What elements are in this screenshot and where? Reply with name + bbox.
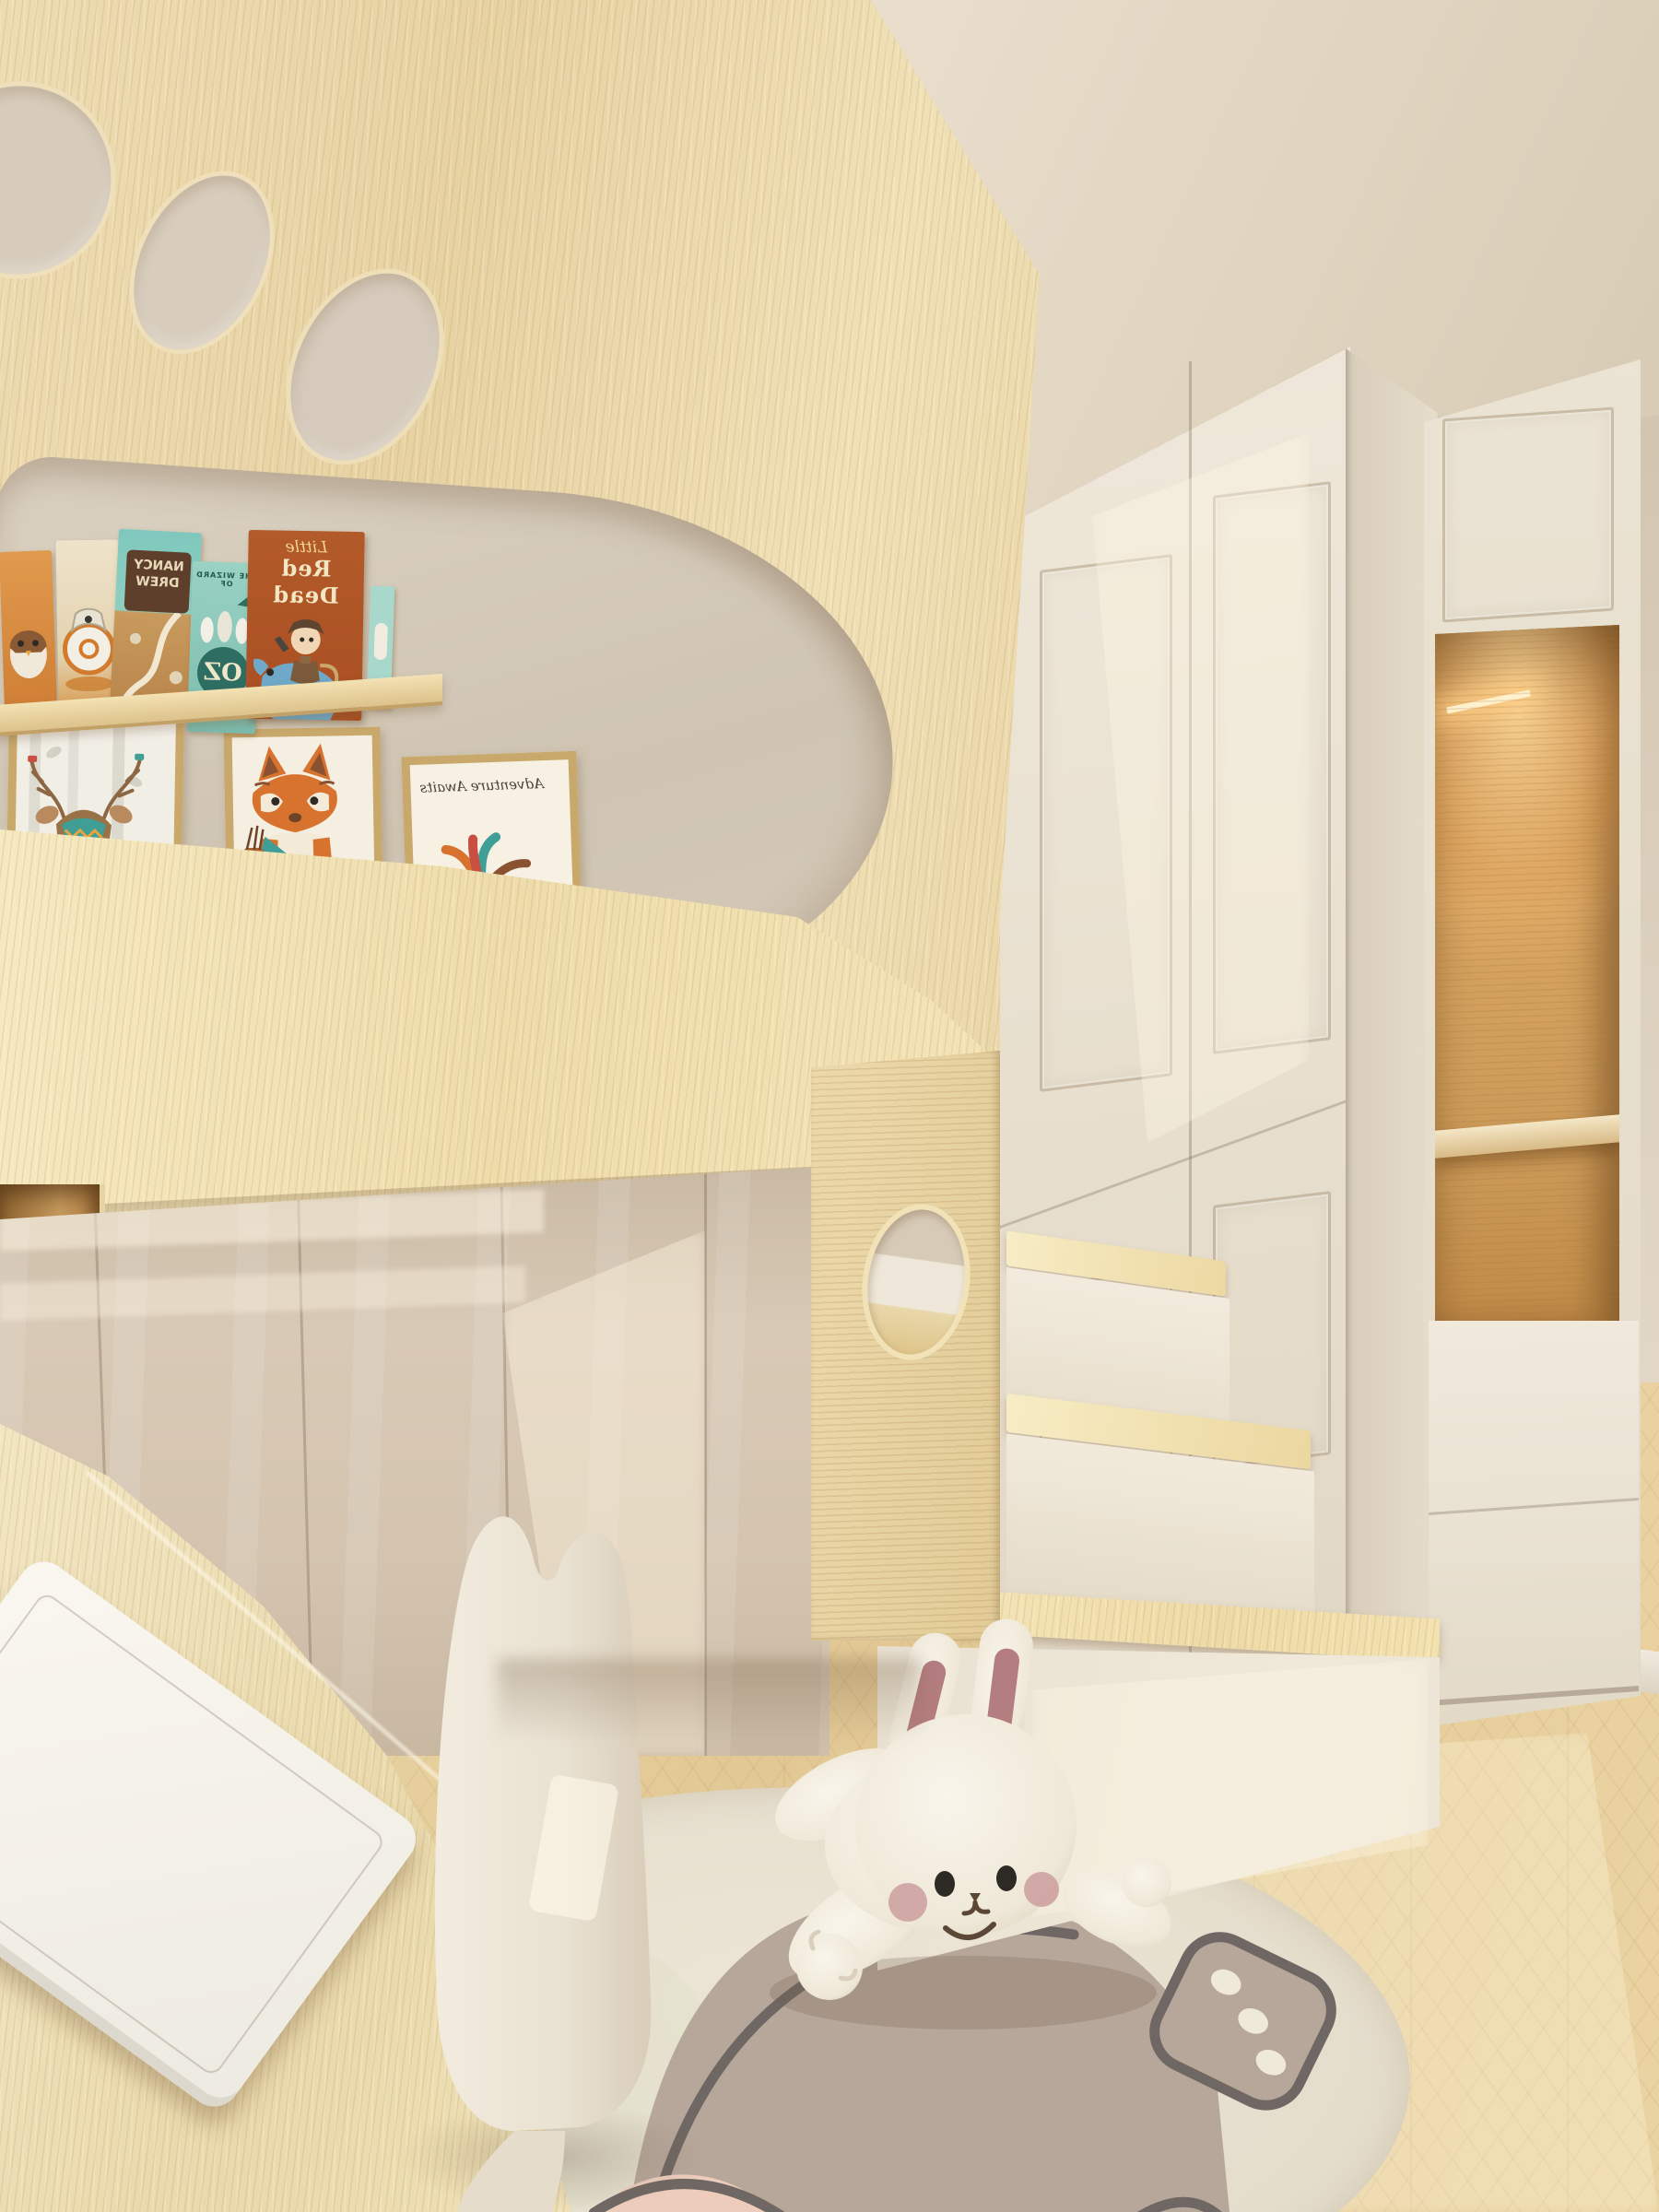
display-niche — [1435, 625, 1619, 1325]
orange-bird-book — [0, 550, 57, 711]
nancy-title-panel: NANCY DREW — [124, 549, 192, 614]
chair-leg — [457, 2131, 565, 2212]
niche-wood-back — [1435, 625, 1619, 1325]
floor-shadow-under-bed — [498, 1659, 922, 1742]
niche-upper-door-frame — [1442, 406, 1614, 622]
niche-base-cabinet — [1429, 1321, 1639, 1708]
kids-room-scene: Adventure Awaits — [0, 0, 1659, 2212]
base-cabinet-gap — [1429, 1498, 1639, 1515]
chair-backrest — [435, 1516, 651, 2131]
print-caption: Adventure Awaits — [410, 775, 553, 796]
cat-ear-chair — [376, 1486, 680, 2212]
bunny-paw — [796, 1934, 863, 2000]
niche-column — [1424, 348, 1641, 1731]
bunny-foot — [1122, 1857, 1171, 1907]
